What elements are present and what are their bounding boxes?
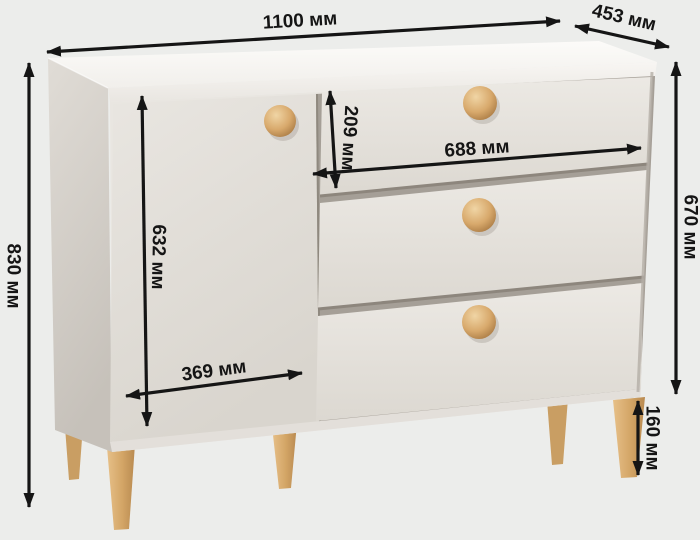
leg-front-right bbox=[613, 397, 645, 478]
drawer-2-knob bbox=[462, 198, 496, 232]
dim-carcass-height-label: 670 мм bbox=[680, 194, 700, 259]
dresser-diagram-canvas: 1100 мм 453 мм 830 мм 632 мм 209 мм 688 … bbox=[0, 0, 700, 540]
dim-overall-width-label: 1100 мм bbox=[262, 8, 338, 33]
dim-overall-height-label: 830 мм bbox=[3, 243, 24, 308]
dim-top-drawer-height-label: 209 мм bbox=[337, 105, 361, 171]
dim-leg-height-label: 160 мм bbox=[642, 405, 663, 470]
dimension-diagram: 1100 мм 453 мм 830 мм 632 мм 209 мм 688 … bbox=[0, 0, 700, 540]
side-panel-left bbox=[48, 58, 112, 452]
drawer-3-knob bbox=[462, 305, 496, 339]
leg-front-left bbox=[107, 444, 135, 530]
leg-back-right bbox=[547, 398, 568, 465]
door-knob bbox=[264, 105, 296, 137]
dim-door-height-label: 632 мм bbox=[147, 224, 169, 289]
drawer-1-knob bbox=[463, 86, 497, 120]
